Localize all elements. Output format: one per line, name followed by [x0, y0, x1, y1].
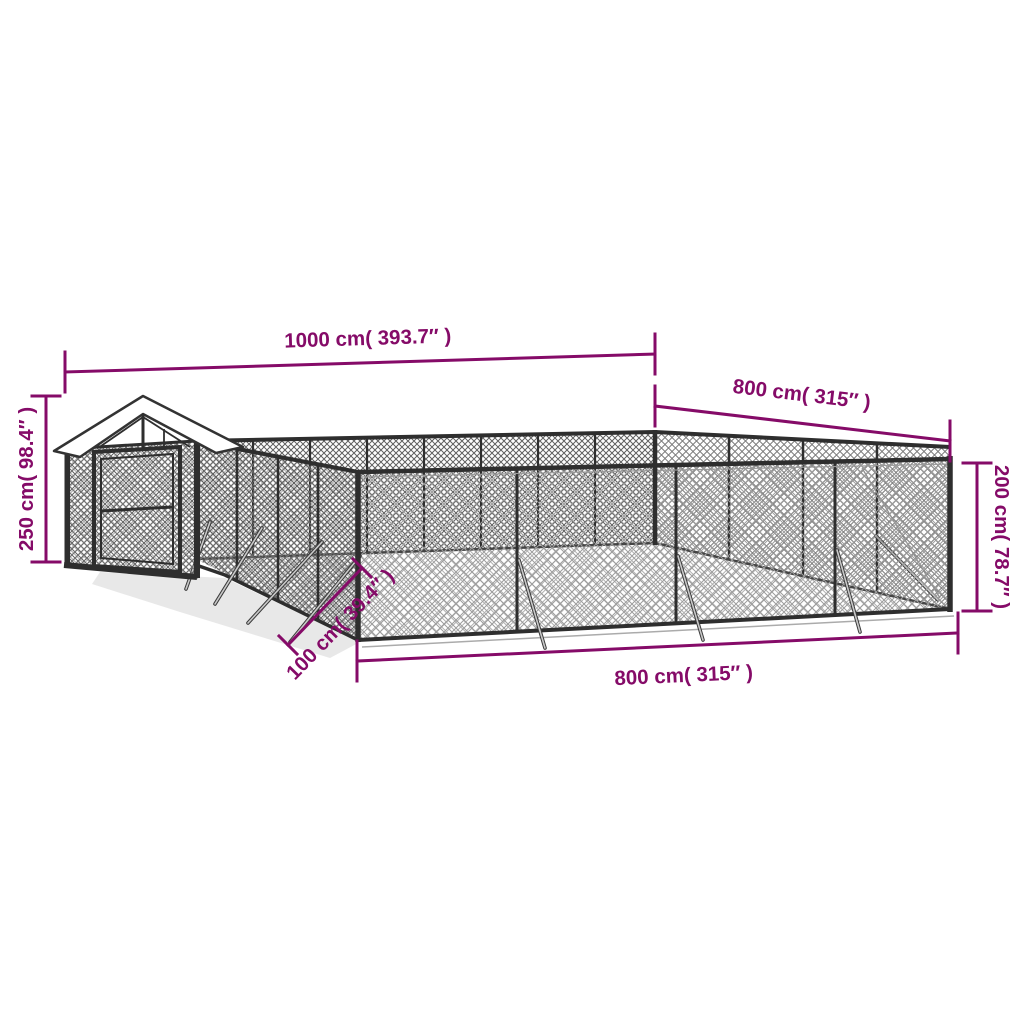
dog-kennel-illustration	[54, 396, 954, 658]
dim-fence-height-line	[963, 463, 991, 611]
product-dimension-diagram: 1000 cm( 393.7″ ) 800 cm( 315″ ) 250 cm(…	[0, 0, 1024, 1024]
dim-front-width-label: 800 cm( 315″ )	[614, 661, 754, 690]
dim-fence-height-label: 200 cm( 78.7″ )	[990, 465, 1013, 609]
dim-house-height-label: 250 cm( 98.4″ )	[15, 407, 38, 551]
dim-back-width-label: 1000 cm( 393.7″ )	[284, 324, 452, 352]
dim-side-depth-label: 800 cm( 315″ )	[732, 375, 872, 414]
